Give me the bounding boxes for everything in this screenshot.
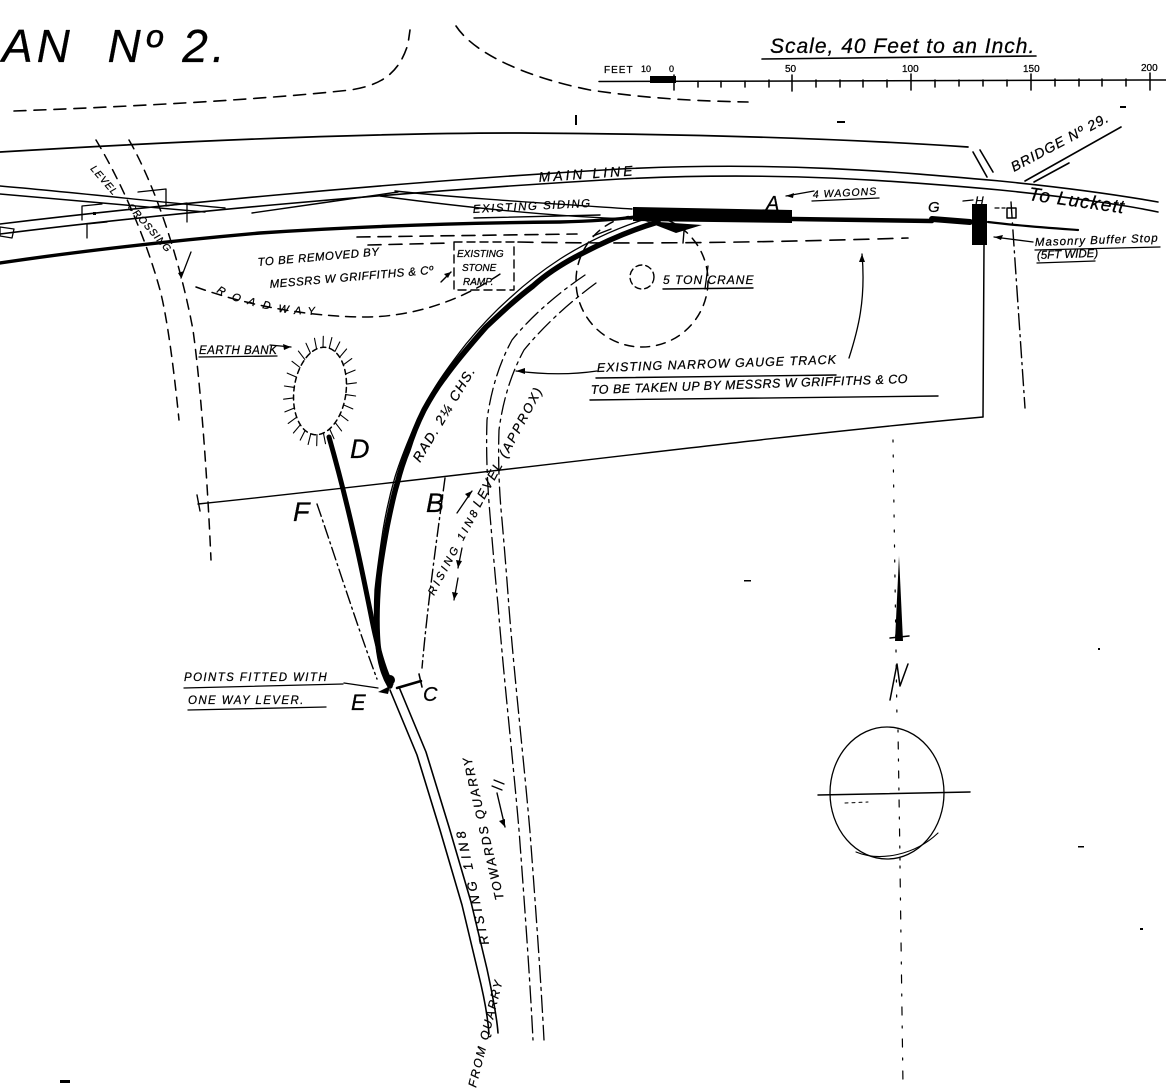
svg-text:AN Nº 2.: AN Nº 2. — [0, 20, 229, 72]
svg-text:W: W — [278, 303, 291, 316]
svg-text:FROM QUARRY: FROM QUARRY — [465, 977, 506, 1088]
svg-text:Y: Y — [307, 305, 316, 318]
svg-text:0: 0 — [669, 64, 674, 74]
svg-text:TO BE REMOVED BY: TO BE REMOVED BY — [257, 246, 381, 269]
svg-text:MESSRS W GRIFFITHS & Cº: MESSRS W GRIFFITHS & Cº — [269, 265, 434, 291]
svg-text:A: A — [245, 295, 257, 309]
svg-text:C: C — [423, 684, 438, 706]
svg-text:BRIDGE Nº 29.: BRIDGE Nº 29. — [1008, 109, 1112, 174]
svg-text:Scale, 40 Feet to an Inch.: Scale, 40 Feet to an Inch. — [770, 35, 1035, 58]
svg-text:D: D — [261, 299, 271, 312]
svg-text:10: 10 — [641, 64, 651, 74]
svg-text:RAMP.: RAMP. — [463, 277, 493, 288]
svg-text:FEET: FEET — [604, 65, 634, 76]
svg-text:(5FT WIDE): (5FT WIDE) — [1037, 248, 1099, 262]
svg-text:G: G — [928, 199, 940, 216]
svg-text:LEVEL (APPROX): LEVEL (APPROX) — [469, 383, 545, 509]
svg-text:POINTS FITTED WITH: POINTS FITTED WITH — [184, 672, 328, 684]
svg-text:H: H — [975, 194, 984, 208]
svg-text:EXISTING NARROW GAUGE TRACK: EXISTING NARROW GAUGE TRACK — [597, 353, 838, 375]
svg-text:5 TON CRANE: 5 TON CRANE — [663, 273, 754, 287]
svg-text:E: E — [351, 690, 366, 715]
svg-text:A: A — [765, 193, 779, 215]
svg-text:Masonry Buffer Stop: Masonry Buffer Stop — [1035, 233, 1159, 249]
svg-text:O: O — [230, 291, 243, 306]
svg-text:150: 150 — [1023, 64, 1040, 75]
svg-text:200: 200 — [1141, 63, 1158, 74]
svg-text:LEVEL: LEVEL — [88, 164, 120, 198]
svg-text:F: F — [293, 497, 311, 527]
svg-text:D: D — [350, 434, 370, 464]
svg-text:EARTH BANK: EARTH BANK — [199, 345, 278, 357]
svg-text:50: 50 — [785, 64, 797, 75]
svg-text:100: 100 — [902, 64, 919, 75]
svg-text:R: R — [215, 284, 228, 298]
svg-text:ONE WAY LEVER.: ONE WAY LEVER. — [188, 695, 305, 707]
svg-text:A: A — [293, 305, 302, 317]
svg-text:EXISTING: EXISTING — [457, 249, 504, 260]
svg-text:STONE: STONE — [462, 263, 497, 274]
svg-text:MAIN LINE: MAIN LINE — [538, 162, 636, 185]
